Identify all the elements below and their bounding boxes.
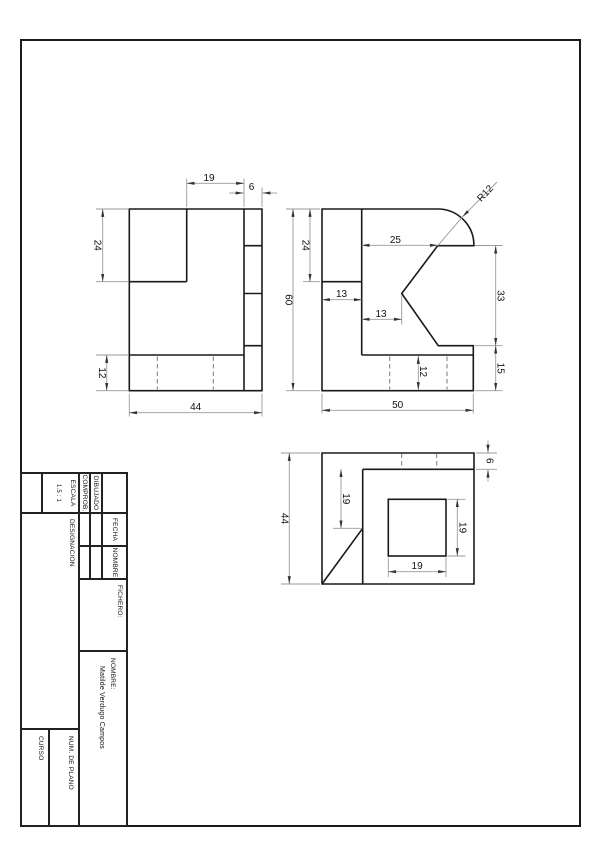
- dim-side-height: 60: [283, 294, 294, 306]
- curso-cell: CURSO: [20, 729, 49, 827]
- side-view: 60 24 13 13 25 33 15 12 50 R12: [283, 182, 506, 414]
- dim-top-strip: 6: [483, 458, 494, 464]
- comprob-nombre-cell: [79, 546, 90, 579]
- dim-top-depth: 44: [279, 513, 290, 525]
- nombre-value: Matilde Verdugo Campos: [98, 666, 105, 826]
- dim-front-notch: 24: [92, 240, 103, 252]
- dim-side-top: 25: [390, 235, 402, 246]
- dim-side-offset: 13: [336, 289, 348, 300]
- front-outline: [129, 209, 262, 391]
- fichero-cell: FICHERO:: [79, 579, 127, 651]
- nombre-label: NOMBRE:: [109, 658, 116, 826]
- dim-side-step: 24: [299, 240, 310, 252]
- comprob-label-cell: COMPROB.: [79, 473, 90, 513]
- title-block: FECHA NOMBRE DIBUJADO COMPROB. FICHERO: …: [21, 472, 128, 826]
- dibujado-label-cell: DIBUJADO: [90, 473, 102, 513]
- top-square-hole: [388, 499, 446, 556]
- top-chamfer-line: [322, 528, 363, 584]
- dim-side-width: 50: [392, 400, 404, 411]
- title-block-empty-cell: [20, 473, 42, 513]
- escala-label: ESCALA: [69, 474, 76, 512]
- dim-front-width: 19: [203, 173, 215, 184]
- nombre-header-cell: NOMBRE: [102, 546, 127, 579]
- designacion-cell: DESIGNACION: [20, 513, 79, 729]
- title-block-empty-cell: [102, 473, 127, 513]
- dibujado-nombre-cell: [90, 546, 102, 579]
- num-de-plano-cell: NUM. DE PLANO: [49, 729, 79, 827]
- dim-side-notch: 33: [495, 290, 506, 302]
- dim-top-square-h: 19: [412, 561, 424, 572]
- comprob-fecha-cell: [79, 513, 90, 546]
- fecha-header-cell: FECHA: [102, 513, 127, 546]
- dibujado-fecha-cell: [90, 513, 102, 546]
- dim-top-square-v: 19: [456, 522, 467, 534]
- dim-top-left: 19: [340, 493, 351, 505]
- radius-leader-line: [438, 217, 463, 246]
- top-view: 44 6 19 19 19: [279, 441, 497, 585]
- top-outline: [322, 453, 474, 584]
- escala-cell: ESCALA 1.5 : 1: [42, 473, 79, 513]
- drawing-sheet: 19 6 24 12 44 60 24 13 13: [0, 0, 600, 848]
- dim-side-base: 12: [417, 366, 428, 378]
- nombre-cell: NOMBRE: Matilde Verdugo Campos: [79, 651, 127, 827]
- dim-front-base: 12: [96, 367, 107, 379]
- front-view: 19 6 24 12 44: [92, 173, 278, 417]
- dim-front-col: 6: [249, 182, 255, 193]
- escala-value: 1.5 : 1: [55, 474, 61, 512]
- dim-side-offset2: 13: [375, 309, 387, 320]
- dim-side-bottom: 15: [495, 363, 506, 375]
- dim-front-total: 44: [190, 402, 202, 413]
